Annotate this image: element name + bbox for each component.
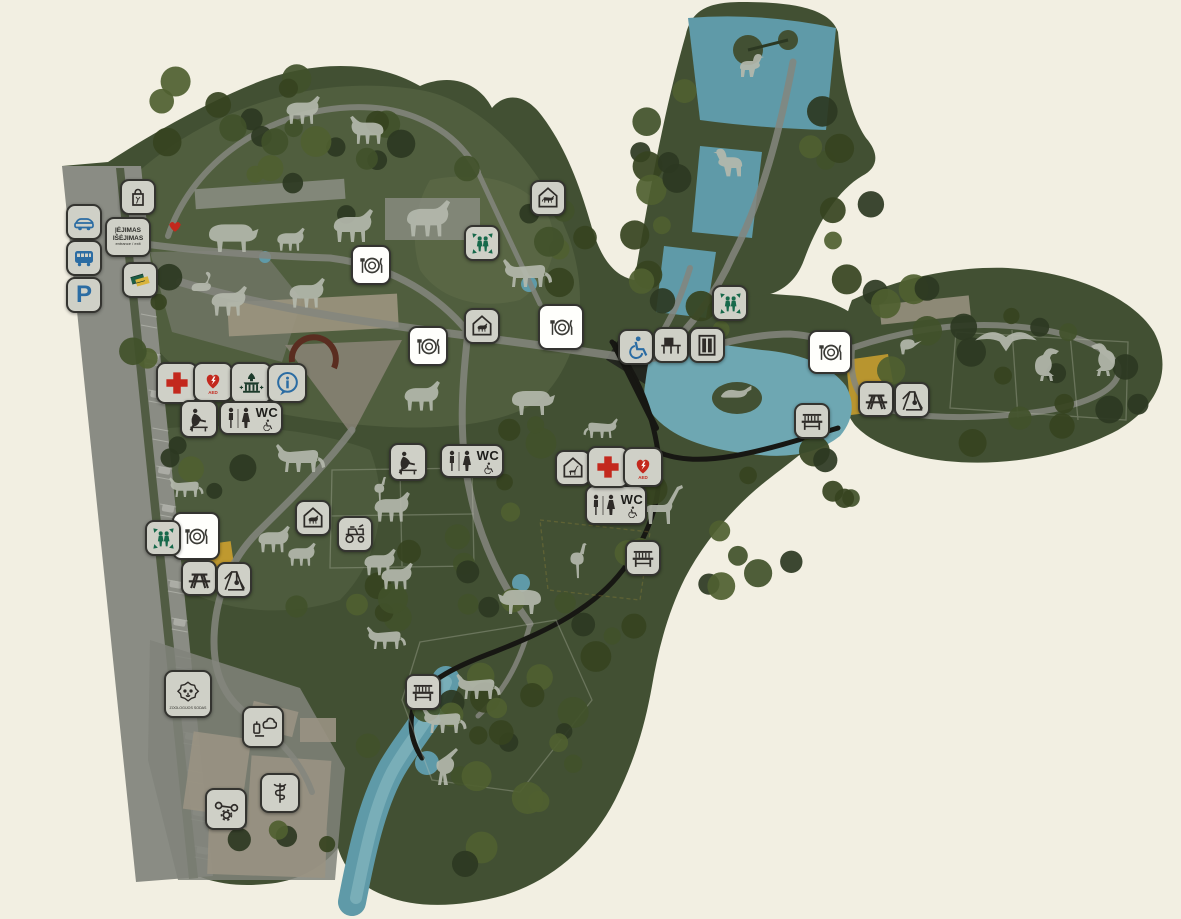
information-marker[interactable] xyxy=(267,363,307,403)
wc-marker[interactable]: WC xyxy=(585,485,647,525)
wheelchair-access-marker[interactable] xyxy=(618,329,654,365)
parking-marker[interactable]: P xyxy=(66,277,102,313)
animal-house-marker[interactable] xyxy=(464,308,500,344)
cat-house-marker[interactable] xyxy=(530,180,566,216)
elevator-marker[interactable] xyxy=(689,327,725,363)
bench-marker[interactable] xyxy=(625,540,661,576)
entrance-sign-text: ĮĖJIMASIŠĖJIMASentrance / exit xyxy=(113,227,143,247)
safari-ride-marker[interactable] xyxy=(337,516,373,552)
meeting-point-marker[interactable] xyxy=(464,225,500,261)
first-aid-marker[interactable] xyxy=(156,362,198,404)
feeding-point-marker[interactable] xyxy=(653,327,689,363)
wc-label: WC xyxy=(621,493,644,506)
playground-marker[interactable] xyxy=(894,382,930,418)
bench-marker[interactable] xyxy=(794,403,830,439)
bus-access-marker[interactable] xyxy=(66,240,102,276)
bench-marker[interactable] xyxy=(405,674,441,710)
restaurant-marker[interactable] xyxy=(408,326,448,366)
playground-marker[interactable] xyxy=(216,562,252,598)
aed-icon: AED xyxy=(201,369,225,396)
zoo-map-page: PĮĖJIMASIŠĖJIMASentrance / exitAEDWCWCWC… xyxy=(0,0,1181,919)
wc-label: WC xyxy=(477,449,500,462)
farm-house-marker[interactable] xyxy=(295,500,331,536)
picnic-area-marker[interactable] xyxy=(858,381,894,417)
entrance-sign-marker[interactable]: ĮĖJIMASIŠĖJIMASentrance / exit xyxy=(105,217,151,257)
marker-overlay: PĮĖJIMASIŠĖJIMASentrance / exitAEDWCWCWC… xyxy=(0,0,1181,919)
restaurant-marker[interactable] xyxy=(808,330,852,374)
wc-marker[interactable]: WC xyxy=(440,444,504,478)
baby-care-marker[interactable] xyxy=(180,400,218,438)
entrance-marker-marker[interactable] xyxy=(165,218,185,238)
monument-marker[interactable] xyxy=(230,362,272,404)
aed-marker[interactable]: AED xyxy=(623,447,663,487)
aed-label: AED xyxy=(638,476,648,481)
aed-label: AED xyxy=(208,391,218,396)
picnic-area-marker[interactable] xyxy=(181,560,217,596)
restaurant-marker[interactable] xyxy=(538,304,584,350)
zoo-logo-label: ZOOLOGIJOS SODAS xyxy=(170,706,207,710)
maintenance-marker[interactable] xyxy=(205,788,247,830)
aed-marker[interactable]: AED xyxy=(193,362,233,402)
gift-shop-marker[interactable] xyxy=(120,179,156,215)
ticket-office-marker[interactable] xyxy=(122,262,158,298)
giraffe-house-marker[interactable] xyxy=(555,450,591,486)
veterinary-marker[interactable] xyxy=(260,773,300,813)
meeting-point-marker[interactable] xyxy=(145,520,181,556)
zoo-logo-marker[interactable]: ZOOLOGIJOS SODAS xyxy=(164,670,212,718)
wc-label: WC xyxy=(256,406,279,419)
meeting-point-marker[interactable] xyxy=(712,285,748,321)
baby-care-marker[interactable] xyxy=(389,443,427,481)
zoo-logo-icon: ZOOLOGIJOS SODAS xyxy=(170,679,207,710)
wc-marker[interactable]: WC xyxy=(219,401,283,435)
kitchen-marker[interactable] xyxy=(242,706,284,748)
car-access-marker[interactable] xyxy=(66,204,102,240)
restaurant-marker[interactable] xyxy=(351,245,391,285)
aed-icon: AED xyxy=(631,454,655,481)
parking-label: P xyxy=(76,283,92,307)
